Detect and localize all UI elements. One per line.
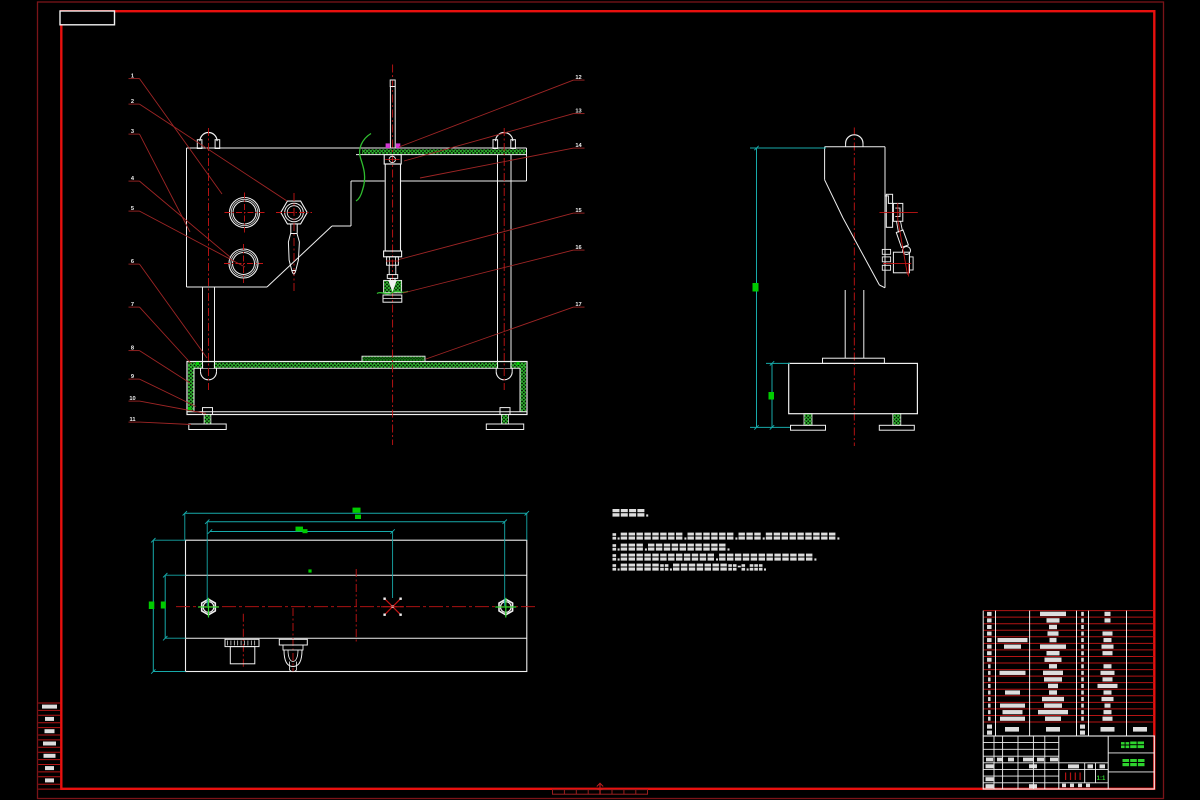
svg-text:1:1: 1:1 <box>1097 776 1106 782</box>
